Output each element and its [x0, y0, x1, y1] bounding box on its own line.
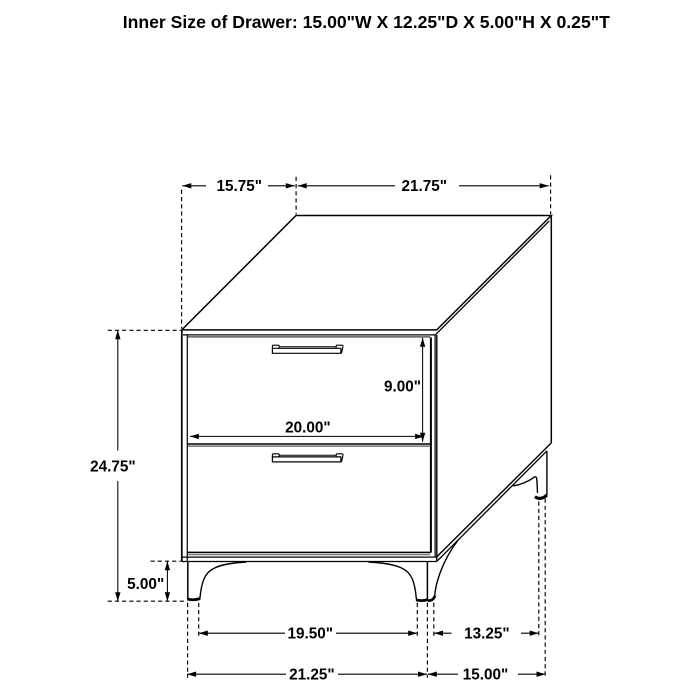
svg-text:20.00": 20.00": [285, 420, 331, 437]
svg-text:9.00": 9.00": [384, 378, 421, 395]
svg-text:24.75": 24.75": [90, 459, 136, 476]
svg-text:5.00": 5.00": [127, 576, 164, 593]
svg-text:15.75": 15.75": [217, 178, 263, 195]
svg-text:Inner Size of Drawer: 15.00"W: Inner Size of Drawer: 15.00"W X 12.25"D …: [123, 12, 610, 32]
svg-text:15.00": 15.00": [463, 667, 509, 684]
svg-text:21.75": 21.75": [402, 178, 448, 195]
svg-text:19.50": 19.50": [288, 626, 334, 643]
svg-text:21.25": 21.25": [289, 667, 335, 684]
svg-text:13.25": 13.25": [464, 626, 510, 643]
